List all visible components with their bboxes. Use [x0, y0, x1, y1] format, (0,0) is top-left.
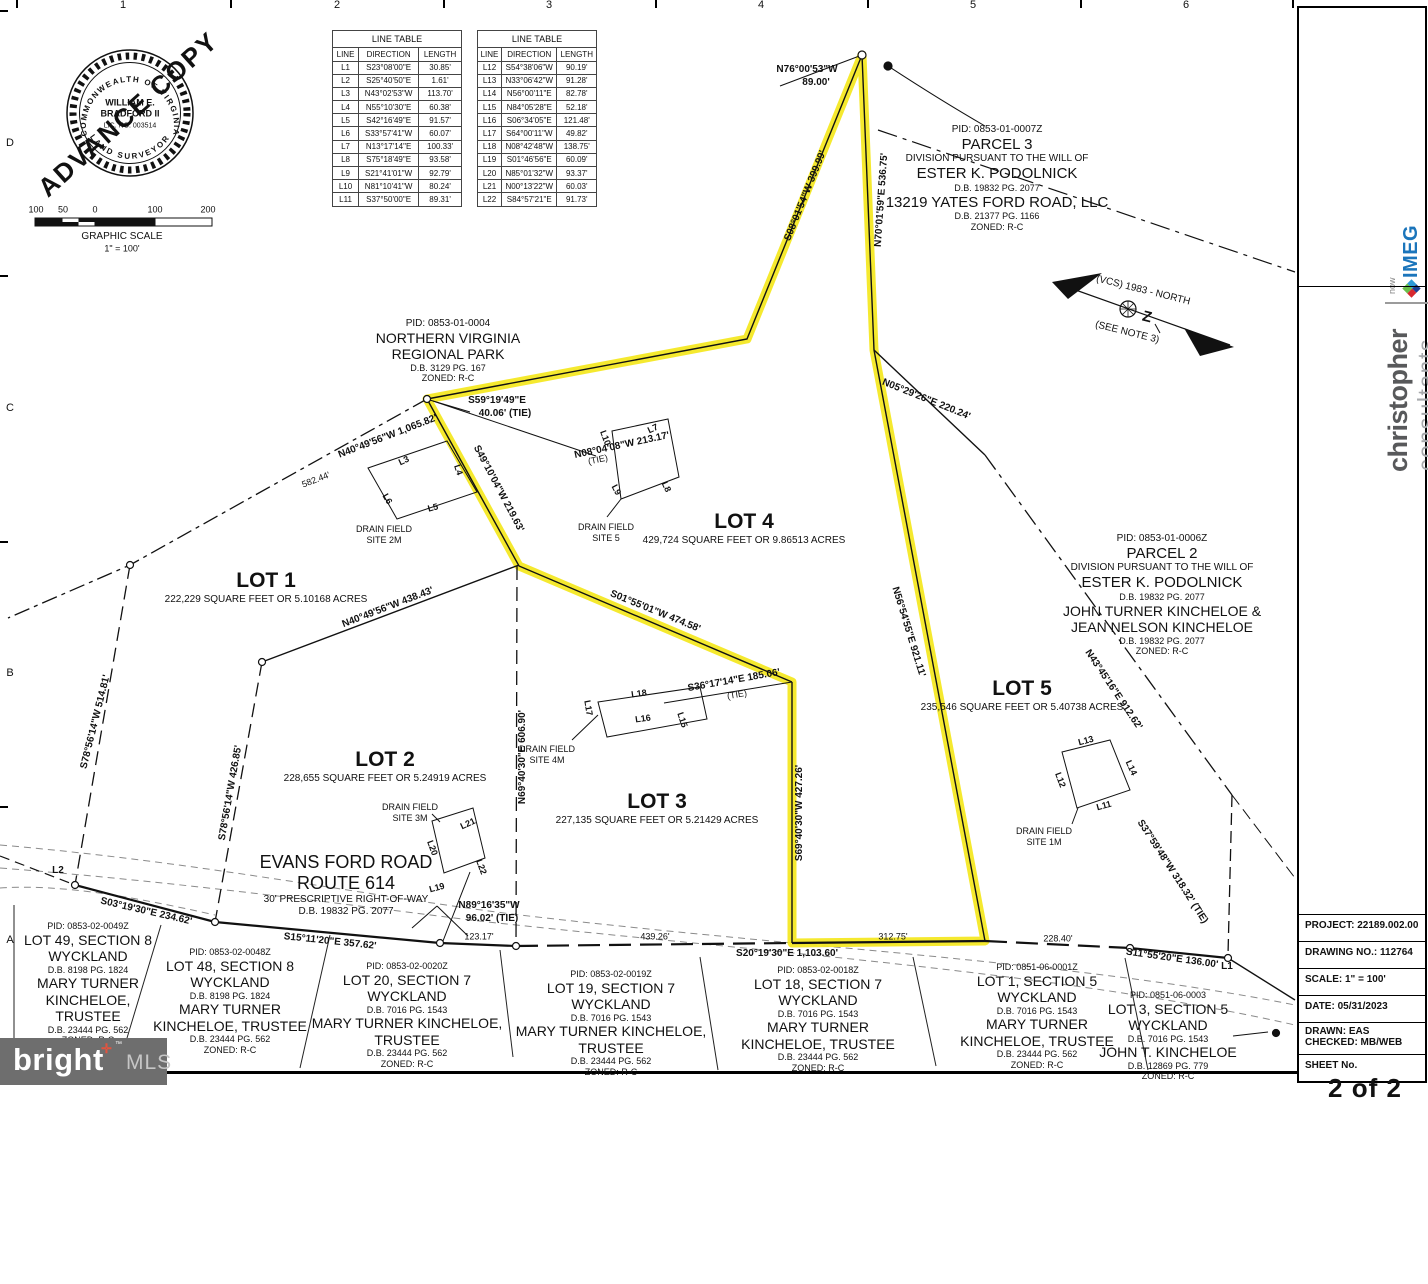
- lot-20-info-line: WYCKLAND: [312, 988, 503, 1005]
- lot-20-info-line: MARY TURNER KINCHELOE,: [312, 1015, 503, 1032]
- line-table-cell: 91.28': [557, 74, 597, 87]
- trademark-symbol: ™: [115, 1041, 122, 1048]
- lot-5-label-line: LOT 5: [921, 677, 1124, 702]
- grid-tick: [16, 0, 18, 8]
- dist-228: 228.40': [1043, 935, 1072, 944]
- line-table-cell: N43°02'53"W: [359, 87, 419, 100]
- lot-19-info: PID: 0853-02-0019ZLOT 19, SECTION 7WYCKL…: [516, 969, 707, 1078]
- line-table-cell: S54°38'06"W: [502, 61, 557, 74]
- bearing-s69: S69°40'30"W 427.26': [795, 765, 805, 861]
- date-row: DATE: 05/31/2023: [1299, 995, 1425, 1022]
- lot-1-s5-info-line: D.B. 7016 PG. 1543: [960, 1006, 1114, 1017]
- bearing-n89: N89°16'35"W: [458, 901, 519, 911]
- lot-1-s5-info: PID: 0851-06-0001ZLOT 1, SECTION 5WYCKLA…: [960, 962, 1114, 1071]
- lot-3-s5-info-line: D.B. 12869 PG. 779: [1099, 1061, 1236, 1072]
- regional-park-info-line: ZONED: R-C: [376, 373, 520, 384]
- line-table-cell: S75°18'49"E: [359, 153, 419, 166]
- checked-by: CHECKED: MB/WEB: [1305, 1037, 1425, 1048]
- line-table-cell: L7: [333, 140, 359, 153]
- lot-48-info: PID: 0853-02-0048ZLOT 48, SECTION 8WYCKL…: [153, 947, 307, 1056]
- lot-49-info-line: D.B. 23444 PG. 562: [24, 1025, 152, 1036]
- line-table-cell: N81°10'41"W: [359, 180, 419, 193]
- bearing-n76: N76°00'53"W: [776, 65, 837, 75]
- drawn-by: DRAWN: EAS: [1305, 1026, 1425, 1037]
- lot-19-info-line: D.B. 7016 PG. 1543: [516, 1013, 707, 1024]
- line-table-header: LENGTH: [419, 48, 462, 61]
- line-table-cell: L15: [478, 101, 502, 114]
- lot-19-info-line: LOT 19, SECTION 7: [516, 980, 707, 997]
- parcel-3-info-line: DIVISION PURSUANT TO THE WILL OF: [886, 153, 1109, 165]
- line-table-cell: L19: [478, 153, 502, 166]
- regional-park-info-line: NORTHERN VIRGINIA: [376, 330, 520, 347]
- lot-20-info-line: ZONED: R-C: [312, 1059, 503, 1070]
- drain-field-3m-label-line: SITE 3M: [382, 813, 438, 824]
- line-table-cell: S01°46'56"E: [502, 153, 557, 166]
- lot-1-s5-info-line: LOT 1, SECTION 5: [960, 973, 1114, 990]
- lot-18-info-line: PID: 0853-02-0018Z: [741, 965, 895, 976]
- lot-4-label: LOT 4429,724 SQUARE FEET OR 9.86513 ACRE…: [643, 510, 846, 547]
- firm-section: christopher consultants now IMEG 9301 In…: [1299, 8, 1425, 286]
- line-table-cell: L20: [478, 167, 502, 180]
- bearing-s59-len: 40.06' (TIE): [479, 409, 531, 419]
- grid-row-C: C: [4, 402, 16, 414]
- lot-3-s5-info-line: PID: 0851-06-0003: [1099, 990, 1236, 1001]
- drain-field-5-label-line: SITE 5: [578, 533, 634, 544]
- line-table-cell: 121.48': [557, 114, 597, 127]
- lot-49-info-line: D.B. 8198 PG. 1824: [24, 965, 152, 976]
- line-table-cell: 91.57': [419, 114, 462, 127]
- road-label-line: EVANS FORD ROAD: [260, 852, 433, 873]
- drain-field-2m-label-line: DRAIN FIELD: [356, 524, 412, 535]
- parcel-3-info-line: D.B. 19832 PG. 2077: [886, 183, 1109, 194]
- line-table: LINE TABLELINEDIRECTIONLENGTHL12S54°38'0…: [477, 30, 597, 207]
- line-table-header: LENGTH: [557, 48, 597, 61]
- grid-tick: [1292, 0, 1294, 8]
- line-table-cell: S23°08'00"E: [359, 61, 419, 74]
- grid-tick: [443, 0, 445, 8]
- drain-field-3m-label-line: DRAIN FIELD: [382, 802, 438, 813]
- line-table-title: LINE TABLE: [478, 31, 597, 48]
- parcel-2-info-line: D.B. 19832 PG. 2077: [1063, 592, 1261, 603]
- regional-park-info-line: REGIONAL PARK: [376, 346, 520, 363]
- line-table-cell: 30.85': [419, 61, 462, 74]
- line-table-cell: N13°17'14"E: [359, 140, 419, 153]
- line-table-cell: S42°16'49"E: [359, 114, 419, 127]
- grid-column-6: 6: [1183, 0, 1189, 11]
- line-table-cell: 138.75': [557, 140, 597, 153]
- scale-tick-100l: 100: [28, 206, 43, 215]
- lot-18-info-line: ZONED: R-C: [741, 1063, 895, 1074]
- regional-park-info-line: PID: 0853-01-0004: [376, 318, 520, 330]
- parcel-2-info-line: PID: 0853-01-0006Z: [1063, 533, 1261, 545]
- lot-3-s5-info-line: WYCKLAND: [1099, 1017, 1236, 1034]
- grid-row-B: B: [4, 667, 16, 679]
- lot-3-label: LOT 3227,135 SQUARE FEET OR 5.21429 ACRE…: [556, 790, 759, 827]
- line-table-cell: 52.18': [557, 101, 597, 114]
- line-table-cell: L18: [478, 140, 502, 153]
- lot-20-info-line: D.B. 7016 PG. 1543: [312, 1005, 503, 1016]
- lot-1-label-line: 222,229 SQUARE FEET OR 5.10168 ACRES: [165, 594, 368, 606]
- line-table-header: LINE: [333, 48, 359, 61]
- drain-field-1m-label-line: DRAIN FIELD: [1016, 826, 1072, 837]
- line-table-cell: N85°01'32"W: [502, 167, 557, 180]
- parcel-3-info-line: PID: 0853-01-0007Z: [886, 124, 1109, 136]
- lot-2-label-line: LOT 2: [284, 748, 487, 773]
- lot-20-info-line: PID: 0853-02-0020Z: [312, 961, 503, 972]
- lot-3-s5-info-line: ZONED: R-C: [1099, 1071, 1236, 1082]
- lot-3-s5-info-line: JOHN T. KINCHELOE: [1099, 1044, 1236, 1061]
- scale-title: GRAPHIC SCALE: [81, 232, 162, 242]
- lot-20-info-line: D.B. 23444 PG. 562: [312, 1048, 503, 1059]
- scale-tick-0: 0: [92, 206, 97, 215]
- lot-20-info-line: TRUSTEE: [312, 1032, 503, 1049]
- grid-tick: [1080, 0, 1082, 8]
- plat-map: COMMONWEALTH OF VIRGINIA LAND SURVEYOR N…: [0, 0, 1428, 1085]
- lot-19-info-line: D.B. 23444 PG. 562: [516, 1056, 707, 1067]
- line-table-cell: 91.73': [557, 193, 597, 206]
- lot-18-info-line: LOT 18, SECTION 7: [741, 976, 895, 993]
- line-table-cell: 113.70': [419, 87, 462, 100]
- lot-4-label-line: 429,724 SQUARE FEET OR 9.86513 ACRES: [643, 535, 846, 547]
- lot-1-s5-info-line: WYCKLAND: [960, 989, 1114, 1006]
- lot-49-info-line: TRUSTEE: [24, 1008, 152, 1025]
- bearing-n76-len: 89.00': [802, 78, 829, 88]
- lot-48-info-line: MARY TURNER: [153, 1001, 307, 1018]
- scale-tick-100r: 100: [147, 206, 162, 215]
- line-ref-l17: L17: [582, 700, 594, 717]
- lot-1-s5-info-line: ZONED: R-C: [960, 1060, 1114, 1071]
- grid-tick: [0, 806, 8, 808]
- drain-field-5-label-line: DRAIN FIELD: [578, 522, 634, 533]
- sheet-value: 2 of 2: [1305, 1073, 1425, 1104]
- drain-field-2m-label-line: SITE 2M: [356, 535, 412, 546]
- grid-tick: [0, 10, 8, 12]
- lot-20-info: PID: 0853-02-0020ZLOT 20, SECTION 7WYCKL…: [312, 961, 503, 1070]
- lot-20-info-line: LOT 20, SECTION 7: [312, 972, 503, 989]
- lot-3-label-line: 227,135 SQUARE FEET OR 5.21429 ACRES: [556, 815, 759, 827]
- grid-column-2: 2: [334, 0, 340, 11]
- line-table-cell: L9: [333, 167, 359, 180]
- lot-3-s5-info: PID: 0851-06-0003LOT 3, SECTION 5WYCKLAN…: [1099, 990, 1236, 1082]
- line-table-cell: 93.58': [419, 153, 462, 166]
- title-block: christopher consultants now IMEG 9301 In…: [1297, 6, 1427, 1083]
- lot-48-info-line: PID: 0853-02-0048Z: [153, 947, 307, 958]
- lot-3-s5-info-line: LOT 3, SECTION 5: [1099, 1001, 1236, 1018]
- line-table-cell: N56°00'11"E: [502, 87, 557, 100]
- lot-4-label-line: LOT 4: [643, 510, 846, 535]
- line-table-cell: 82.78': [557, 87, 597, 100]
- line-table-cell: S84°57'21"E: [502, 193, 557, 206]
- grid-column-1: 1: [120, 0, 126, 11]
- line-table-cell: N00°13'22"W: [502, 180, 557, 193]
- line-table-header: DIRECTION: [359, 48, 419, 61]
- drain-field-3m-label: DRAIN FIELDSITE 3M: [382, 802, 438, 823]
- lot-18-info-line: WYCKLAND: [741, 992, 895, 1009]
- lot-1-s5-info-line: D.B. 23444 PG. 562: [960, 1049, 1114, 1060]
- lot-49-info-line: PID: 0853-02-0049Z: [24, 921, 152, 932]
- line-table-cell: L14: [478, 87, 502, 100]
- lot-48-info-line: KINCHELOE, TRUSTEE: [153, 1018, 307, 1035]
- parcel-2-info-line: ZONED: R-C: [1063, 646, 1261, 657]
- lot-3-s5-info-line: D.B. 7016 PG. 1543: [1099, 1034, 1236, 1045]
- parcel-3-info: PID: 0853-01-0007ZPARCEL 3DIVISION PURSU…: [886, 124, 1109, 232]
- line-table-cell: S33°57'41"W: [359, 127, 419, 140]
- parcel-2-info-line: DIVISION PURSUANT TO THE WILL OF: [1063, 562, 1261, 574]
- parcel-3-info-line: ZONED: R-C: [886, 222, 1109, 233]
- line-table-cell: S64°00'11"W: [502, 127, 557, 140]
- scale-row: SCALE: 1" = 100': [1299, 968, 1425, 995]
- lot-19-info-line: WYCKLAND: [516, 996, 707, 1013]
- scale-tick-50: 50: [58, 206, 68, 215]
- drain-field-4m-label-line: SITE 4M: [519, 755, 575, 766]
- line-ref-l2: L2: [52, 866, 64, 876]
- road-label: EVANS FORD ROADROUTE 61430' PRESCRIPTIVE…: [260, 852, 433, 918]
- line-table-cell: 90.19': [557, 61, 597, 74]
- bright-mls-watermark: bright ✛ ™ MLS: [0, 1038, 167, 1085]
- grid-tick: [867, 0, 869, 8]
- parcel-2-info-line: PARCEL 2: [1063, 545, 1261, 563]
- lot-48-info-line: LOT 48, SECTION 8: [153, 958, 307, 975]
- lot-18-info-line: MARY TURNER: [741, 1019, 895, 1036]
- lot-1-label-line: LOT 1: [165, 569, 368, 594]
- line-table-cell: S37°50'00"E: [359, 193, 419, 206]
- line-table-cell: 60.38': [419, 101, 462, 114]
- line-table-cell: S25°40'50"E: [359, 74, 419, 87]
- line-table-cell: L12: [478, 61, 502, 74]
- line-table-cell: 60.09': [557, 153, 597, 166]
- line-table-cell: L5: [333, 114, 359, 127]
- dist-312: 312.75': [878, 933, 907, 942]
- drawing-number: DRAWING NO.: 112764: [1299, 941, 1425, 968]
- lot-18-info-line: D.B. 7016 PG. 1543: [741, 1009, 895, 1020]
- lot-5-label: LOT 5235,546 SQUARE FEET OR 5.40738 ACRE…: [921, 677, 1124, 714]
- bearing-s59: S59°19'49"E: [468, 396, 526, 406]
- line-table-cell: 80.24': [419, 180, 462, 193]
- line-table-2: LINE TABLELINEDIRECTIONLENGTHL12S54°38'0…: [477, 30, 597, 207]
- bearing-n89-len: 96.02' (TIE): [466, 914, 518, 924]
- grid-column-5: 5: [970, 0, 976, 11]
- parcel-3-info-line: 13219 YATES FORD ROAD, LLC: [886, 194, 1109, 212]
- lot-48-info-line: ZONED: R-C: [153, 1045, 307, 1056]
- line-table-cell: 92.79': [419, 167, 462, 180]
- grid-tick: [655, 0, 657, 8]
- drain-field-1m-label-line: SITE 1M: [1016, 837, 1072, 848]
- line-table-cell: 93.37': [557, 167, 597, 180]
- grid-tick: [0, 541, 8, 543]
- lot-1-s5-info-line: MARY TURNER: [960, 1016, 1114, 1033]
- lot-2-label: LOT 2228,655 SQUARE FEET OR 5.24919 ACRE…: [284, 748, 487, 785]
- road-label-line: 30' PRESCRIPTIVE RIGHT-OF-WAY: [260, 894, 433, 906]
- grid-tick: [230, 0, 232, 8]
- line-table-cell: L21: [478, 180, 502, 193]
- lot-3-label-line: LOT 3: [556, 790, 759, 815]
- line-table-header: DIRECTION: [502, 48, 557, 61]
- road-label-line: D.B. 19832 PG. 2077: [260, 906, 433, 918]
- lot-18-info-line: KINCHELOE, TRUSTEE: [741, 1036, 895, 1053]
- lot-18-info: PID: 0853-02-0018ZLOT 18, SECTION 7WYCKL…: [741, 965, 895, 1074]
- line-table-cell: L17: [478, 127, 502, 140]
- line-table-cell: L10: [333, 180, 359, 193]
- parcel-3-info-line: ESTER K. PODOLNICK: [886, 165, 1109, 183]
- line-table-cell: L4: [333, 101, 359, 114]
- plat-title-section: RECORD PLAT SHOWINGSUBDIVISION ON THE LA…: [1299, 286, 1425, 914]
- lot-49-info-line: LOT 49, SECTION 8: [24, 932, 152, 949]
- line-table-cell: S21°41'01"W: [359, 167, 419, 180]
- drain-field-4m-label-line: DRAIN FIELD: [519, 744, 575, 755]
- dist-123: 123.17': [464, 933, 493, 942]
- bright-plus-icon: ✛: [101, 1041, 112, 1057]
- lot-49-info-line: WYCKLAND: [24, 948, 152, 965]
- mls-logo-text: MLS: [126, 1051, 172, 1075]
- line-table: LINE TABLELINEDIRECTIONLENGTHL1S23°08'00…: [332, 30, 462, 207]
- lot-2-label-line: 228,655 SQUARE FEET OR 5.24919 ACRES: [284, 773, 487, 785]
- lot-49-info-line: MARY TURNER: [24, 975, 152, 992]
- lot-49-info: PID: 0853-02-0049ZLOT 49, SECTION 8WYCKL…: [24, 921, 152, 1046]
- sheet-number-row: SHEET No. 2 of 2: [1299, 1054, 1425, 1081]
- line-table-cell: S06°34'05"E: [502, 114, 557, 127]
- bright-logo-text: bright: [13, 1042, 104, 1078]
- line-table-header: LINE: [478, 48, 502, 61]
- grid-row-D: D: [4, 137, 16, 149]
- drain-field-2m-label: DRAIN FIELDSITE 2M: [356, 524, 412, 545]
- sheet-label: SHEET No.: [1305, 1060, 1425, 1071]
- drain-field-5-label: DRAIN FIELDSITE 5: [578, 522, 634, 543]
- lot-5-label-line: 235,546 SQUARE FEET OR 5.40738 ACRES: [921, 702, 1124, 714]
- scale-ratio: 1" = 100': [104, 245, 139, 254]
- line-table-cell: 60.03': [557, 180, 597, 193]
- line-table-cell: N08°42'48"W: [502, 140, 557, 153]
- grid-column-4: 4: [758, 0, 764, 11]
- line-table-cell: 60.07': [419, 127, 462, 140]
- line-table-cell: N55°10'30"E: [359, 101, 419, 114]
- lot-48-info-line: D.B. 8198 PG. 1824: [153, 991, 307, 1002]
- drain-field-1m-label: DRAIN FIELDSITE 1M: [1016, 826, 1072, 847]
- line-table-cell: L11: [333, 193, 359, 206]
- imeg-wordmark: IMEG: [1400, 225, 1423, 278]
- lot-48-info-line: WYCKLAND: [153, 974, 307, 991]
- lot-1-s5-info-line: PID: 0851-06-0001Z: [960, 962, 1114, 973]
- lot-19-info-line: TRUSTEE: [516, 1040, 707, 1057]
- lot-19-info-line: PID: 0853-02-0019Z: [516, 969, 707, 980]
- line-table-cell: L13: [478, 74, 502, 87]
- line-table-cell: L1: [333, 61, 359, 74]
- lot-49-info-line: KINCHELOE,: [24, 992, 152, 1009]
- parcel-2-info-line: JEAN NELSON KINCHELOE: [1063, 619, 1261, 636]
- line-table-cell: 100.33': [419, 140, 462, 153]
- lot-18-info-line: D.B. 23444 PG. 562: [741, 1052, 895, 1063]
- line-table-cell: L2: [333, 74, 359, 87]
- grid-row-A: A: [4, 934, 16, 946]
- parcel-2-info-line: ESTER K. PODOLNICK: [1063, 574, 1261, 592]
- drawn-checked-row: DRAWN: EAS CHECKED: MB/WEB: [1299, 1022, 1425, 1054]
- line-table-cell: 1.61': [419, 74, 462, 87]
- project-number: PROJECT: 22189.002.00: [1299, 914, 1425, 941]
- line-table-cell: 89.31': [419, 193, 462, 206]
- parcel-3-info-line: PARCEL 3: [886, 136, 1109, 154]
- lot-1-s5-info-line: KINCHELOE, TRUSTEE: [960, 1033, 1114, 1050]
- parcel-2-info: PID: 0853-01-0006ZPARCEL 2DIVISION PURSU…: [1063, 533, 1261, 657]
- dist-439: 439.26': [640, 933, 669, 942]
- line-table-title: LINE TABLE: [333, 31, 462, 48]
- line-table-cell: N84°05'28"E: [502, 101, 557, 114]
- graphic-scale-bar: [35, 218, 212, 226]
- parcel-2-info-line: JOHN TURNER KINCHELOE &: [1063, 603, 1261, 620]
- lot-19-info-line: MARY TURNER KINCHELOE,: [516, 1023, 707, 1040]
- grid-column-3: 3: [546, 0, 552, 11]
- line-table-cell: L16: [478, 114, 502, 127]
- line-table-cell: N33°06'42"W: [502, 74, 557, 87]
- parcel-3-info-line: D.B. 21377 PG. 1166: [886, 211, 1109, 222]
- line-table-1: LINE TABLELINEDIRECTIONLENGTHL1S23°08'00…: [332, 30, 462, 207]
- lot-1-label: LOT 1222,229 SQUARE FEET OR 5.10168 ACRE…: [165, 569, 368, 606]
- plat-sheet: { "grid": { "top": [{"t":"1","x":123},{"…: [0, 0, 1428, 1085]
- line-table-cell: L8: [333, 153, 359, 166]
- line-table-cell: L6: [333, 127, 359, 140]
- scale-tick-200: 200: [200, 206, 215, 215]
- line-ref-l1: L1: [1221, 962, 1233, 972]
- grid-tick: [0, 275, 8, 277]
- road-label-line: ROUTE 614: [260, 873, 433, 894]
- regional-park-info: PID: 0853-01-0004NORTHERN VIRGINIAREGION…: [376, 318, 520, 384]
- line-table-cell: 49.82': [557, 127, 597, 140]
- parcel-2-info-line: D.B. 19832 PG. 2077: [1063, 636, 1261, 647]
- lot-48-info-line: D.B. 23444 PG. 562: [153, 1034, 307, 1045]
- drain-field-4m-label: DRAIN FIELDSITE 4M: [519, 744, 575, 765]
- bearing-s20: S20°19'30"E 1,103.60': [736, 949, 838, 959]
- lot-19-info-line: ZONED: R-C: [516, 1067, 707, 1078]
- line-table-cell: L22: [478, 193, 502, 206]
- line-table-cell: L3: [333, 87, 359, 100]
- regional-park-info-line: D.B. 3129 PG. 167: [376, 363, 520, 374]
